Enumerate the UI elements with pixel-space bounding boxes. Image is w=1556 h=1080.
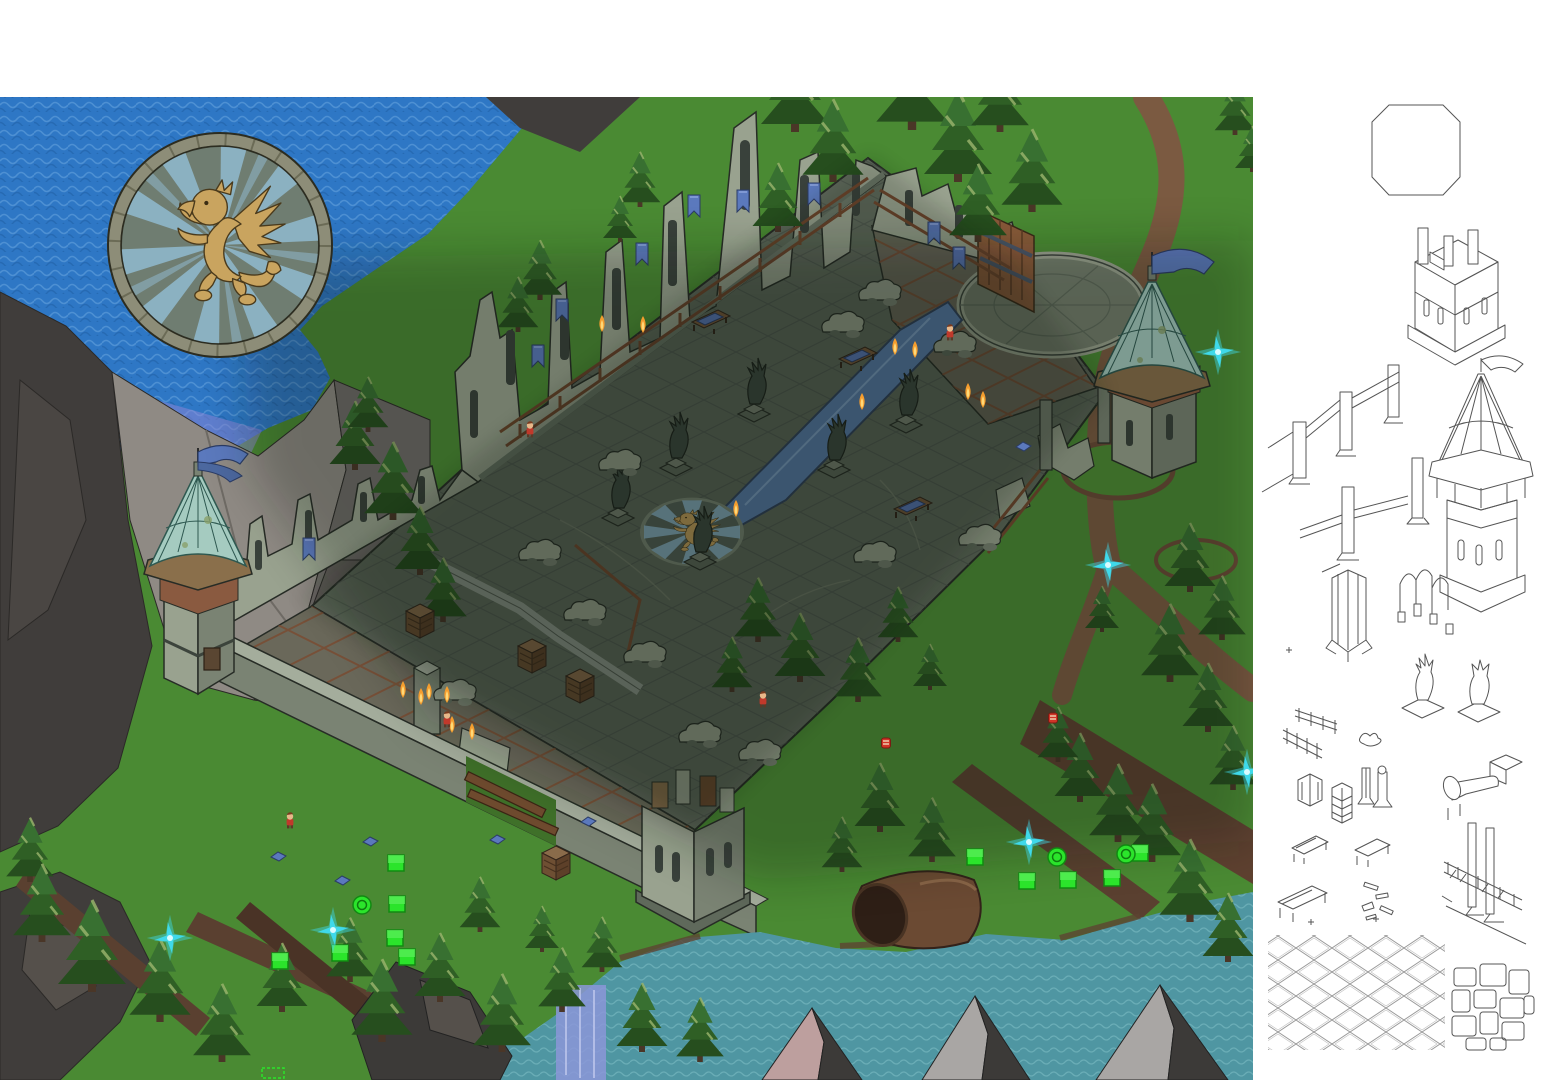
wall-post-sketch [1300, 487, 1408, 572]
gcirc-instance [1117, 845, 1135, 863]
railing-sketches [1283, 708, 1337, 759]
gsq-instance [1019, 873, 1035, 889]
tree-instance [971, 54, 1029, 132]
asset-sketch-sidebar [1262, 105, 1534, 1050]
redpot-instance [882, 738, 891, 748]
pillar-sketch [1407, 458, 1429, 524]
obelisk-column-sketch [1326, 570, 1372, 662]
table-sketch [1278, 886, 1327, 922]
cabinet-sketch [1298, 774, 1322, 806]
roofed-tower-sketch [1429, 356, 1533, 612]
octagon-outline [1372, 105, 1460, 195]
gcirc-instance [1048, 848, 1066, 866]
shelf-instance [542, 846, 570, 880]
gsq-instance [967, 849, 983, 865]
gsq-instance [1060, 872, 1076, 888]
gsq-instance [399, 949, 415, 965]
flagstone-tile-swatch [1452, 964, 1534, 1050]
map-panel [0, 33, 1270, 1080]
tree-instance [761, 40, 829, 132]
gsq-instance [389, 896, 405, 912]
column-sketches [1358, 766, 1392, 807]
gsq-instance [388, 855, 404, 871]
lattice-tile-swatch [1268, 935, 1445, 1050]
gothic-arches-sketch [1398, 570, 1453, 634]
fallen-statue-sketch [1440, 755, 1522, 820]
griffin-statue-sketches [1402, 654, 1500, 722]
gsq-instance [1104, 870, 1120, 886]
tree-instance [876, 33, 947, 130]
gcirc-instance [353, 896, 371, 914]
ruined-square-tower-sketch [1408, 228, 1505, 365]
bench-sketches [1292, 836, 1390, 867]
plant-sketch [1360, 733, 1382, 746]
griffin-medallion [108, 133, 332, 357]
gsq-instance [272, 953, 288, 969]
scene-canvas [0, 0, 1556, 1080]
shelf-sketch [1332, 783, 1352, 823]
gsq-instance [332, 945, 348, 961]
game-map-sheet [0, 0, 1556, 1080]
bridge-sketch [1442, 823, 1526, 944]
debris-sketch [1362, 882, 1393, 920]
gsq-instance [387, 930, 403, 946]
redpot-instance [1049, 713, 1058, 723]
wall-fence-sketch [1262, 365, 1403, 492]
